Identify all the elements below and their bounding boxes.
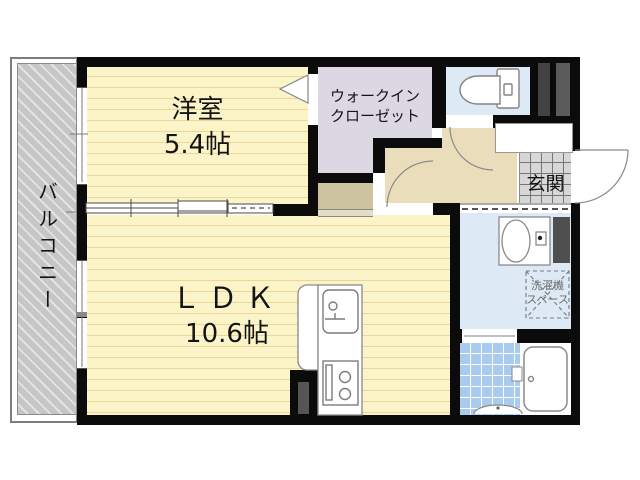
door-gap-western-closet (308, 74, 318, 125)
storage-alcove (318, 183, 373, 209)
walk-in-closet-label: ウォークイン クローゼット (318, 86, 432, 126)
entrance-label: 玄関 (519, 169, 572, 196)
floor-plan: バルコニー (0, 0, 640, 480)
wall-closet-bottom (308, 173, 373, 183)
pipe-shaft-bar-2 (556, 63, 570, 116)
shoe-cabinet (495, 123, 573, 153)
wall-top (77, 57, 580, 67)
window-ldk-1 (77, 260, 87, 314)
washroom-cabinet-block (553, 217, 570, 263)
western-room-label: 洋室 5.4帖 (87, 93, 308, 163)
wall-washroom-left (450, 203, 460, 415)
washer-space-label: 洗濯機 スペース (523, 279, 572, 307)
door-gap-entrance (571, 151, 580, 203)
ldk-size: 10.6帖 (87, 316, 367, 352)
western-room-name: 洋室 (87, 93, 308, 128)
western-room-size: 5.4帖 (87, 128, 308, 163)
wall-bottom (77, 415, 580, 425)
wall-partition-end (273, 204, 318, 216)
kitchen-stub-inner (298, 382, 309, 414)
window-ldk-2 (77, 318, 87, 369)
pipe-shaft-bar-1 (538, 63, 550, 116)
door-gap-closet (373, 173, 385, 203)
door-gap-toilet (450, 115, 493, 128)
wall-toilet-left (432, 57, 446, 128)
hallway-floor-lower (385, 148, 442, 203)
washer-space-line1: 洗濯機 (523, 279, 572, 293)
ldk-label: ＬＤＫ 10.6帖 (87, 280, 367, 352)
bathroom-tile-floor (460, 343, 520, 415)
threshold-washroom (460, 203, 571, 213)
wall-closet-hall-top (373, 138, 442, 148)
washer-space-line2: スペース (523, 293, 572, 307)
window-western-room (77, 87, 87, 185)
bathroom-tub-area (520, 343, 571, 415)
entrance-door-arc (575, 150, 628, 203)
door-gap-bathroom (462, 329, 517, 343)
door-gap-ldk-hall (385, 203, 433, 213)
balcony-label: バルコニー (18, 163, 76, 333)
walk-in-closet-floor-lower (318, 138, 373, 173)
toilet-room-floor (446, 66, 530, 115)
walk-in-closet-line2: クローゼット (318, 106, 432, 126)
storage-alcove-edge (318, 209, 373, 217)
walk-in-closet-line1: ウォークイン (318, 86, 432, 106)
ldk-name: ＬＤＫ (87, 280, 367, 316)
